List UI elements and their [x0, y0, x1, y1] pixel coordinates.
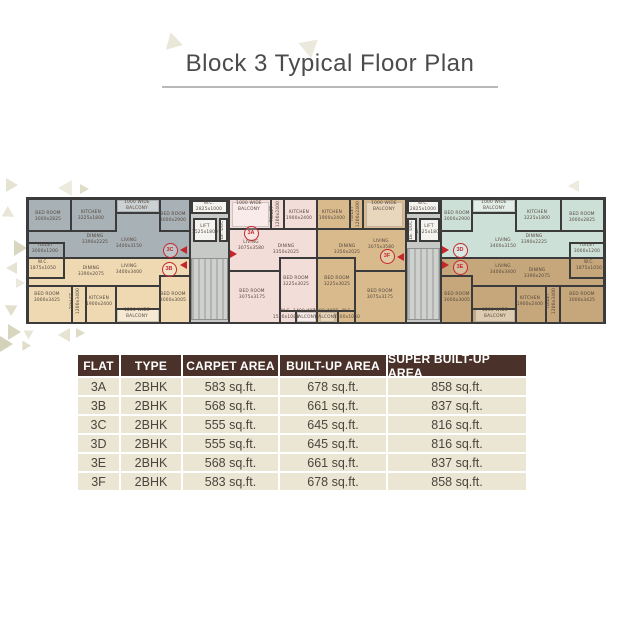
table-cell: 816 sq.ft. — [388, 416, 526, 433]
room-label: 1000 WIDEBALCONY — [124, 200, 150, 212]
wall — [569, 277, 603, 279]
wall — [559, 285, 561, 322]
room-label: LIFT1525x1800 — [416, 224, 442, 236]
room-label: BED ROOM3225x3025 — [324, 276, 350, 288]
wall — [29, 277, 63, 279]
table-cell: 555 sq.ft. — [183, 416, 278, 433]
room-label: DINING3390x2075 — [524, 268, 550, 280]
wall — [405, 200, 407, 322]
area-table: FLATTYPECARPET AREABUILT-UP AREASUPER BU… — [78, 355, 526, 490]
entry-arrow-icon — [442, 261, 449, 269]
decor-triangle — [2, 300, 18, 316]
flat-marker-3c: 3C — [163, 243, 178, 258]
decor-triangle — [58, 328, 70, 342]
decor-triangle — [0, 336, 13, 352]
room-label: W.C.2825x1000 — [196, 201, 222, 213]
room-label: BED ROOM3000x2900 — [444, 211, 470, 223]
room-label: KITCHEN1900x2400 — [319, 210, 345, 222]
wall — [569, 242, 571, 257]
wall — [354, 270, 405, 272]
column-header: FLAT — [78, 355, 119, 376]
entry-arrow-icon — [442, 246, 449, 254]
wall — [442, 275, 473, 277]
table-cell: 858 sq.ft. — [388, 473, 526, 490]
table-cell: 568 sq.ft. — [183, 454, 278, 471]
room-label: DINING3390x2225 — [82, 234, 108, 246]
room-label: KITCHEN3225x1800 — [78, 210, 104, 222]
decor-triangle — [16, 278, 25, 288]
staircase — [191, 258, 228, 320]
room-label: ELE. DUCT — [220, 218, 226, 242]
decor-triangle — [568, 180, 579, 192]
wall — [230, 270, 281, 272]
table-cell: 2BHK — [121, 416, 181, 433]
wall — [29, 285, 159, 287]
wall — [473, 212, 517, 214]
room-label: KITCHEN1900x2400 — [286, 210, 312, 222]
wall — [362, 200, 364, 228]
decor-triangle — [2, 206, 18, 222]
table-cell: 555 sq.ft. — [183, 435, 278, 452]
table-cell: 837 sq.ft. — [388, 454, 526, 471]
room-label: BED ROOM3000x3005 — [160, 292, 186, 304]
wall — [230, 228, 316, 230]
room-label: LIVING3400x3400 — [490, 264, 516, 276]
table-cell: 837 sq.ft. — [388, 397, 526, 414]
room-label: DINING3350x2025 — [273, 244, 299, 256]
room-label: TOILET1200x2400 — [270, 201, 282, 227]
room-label: BED ROOM3075x3175 — [239, 289, 265, 301]
wall — [189, 200, 191, 322]
column-header: BUILT-UP AREA — [280, 355, 386, 376]
room-label: LIVING3400x3400 — [116, 264, 142, 276]
room-label: BED ROOM3000x3425 — [569, 292, 595, 304]
wall — [560, 200, 562, 230]
flat-marker-3a: 3A — [244, 226, 259, 241]
room-label: KITCHEN3225x1800 — [524, 210, 550, 222]
table-cell: 2BHK — [121, 473, 181, 490]
wall — [471, 200, 473, 230]
wall — [283, 200, 285, 228]
table-cell: 858 sq.ft. — [388, 378, 526, 395]
room-label: W.C.1875x1050 — [576, 260, 602, 272]
flat-marker-3b: 3B — [162, 262, 177, 277]
decor-triangle — [6, 178, 18, 192]
room-label: W.C.1875x1050 — [30, 260, 56, 272]
table-cell: 2BHK — [121, 454, 181, 471]
table-cell: 3E — [78, 454, 119, 471]
table-cell: 3B — [78, 397, 119, 414]
entry-arrow-icon — [180, 261, 187, 269]
wall — [471, 275, 473, 322]
room-label: 1000 WIDEBALCONY — [236, 201, 262, 213]
room-label: LIFT1525x1800 — [192, 224, 218, 236]
entry-arrow-icon — [397, 253, 404, 261]
room-label: KITCHEN1900x2400 — [86, 296, 112, 308]
decor-triangle — [18, 341, 31, 354]
room-label: BED ROOM3000x3425 — [34, 292, 60, 304]
wall — [115, 212, 159, 214]
room-label: KITCHEN1900x2400 — [517, 296, 543, 308]
room-label: TOILET1200x3400 — [546, 288, 558, 314]
room-label: 1200 WIDEBALCONY — [482, 308, 508, 320]
table-cell: 583 sq.ft. — [183, 473, 278, 490]
table-cell: 678 sq.ft. — [280, 473, 386, 490]
wall — [115, 285, 117, 322]
table-cell: 3A — [78, 378, 119, 395]
room-label: 1000 WIDEBALCONY — [481, 200, 507, 212]
decor-triangle — [76, 328, 85, 338]
room-label: ELE. DUCT — [409, 218, 415, 242]
decor-triangle — [58, 180, 72, 196]
wall — [318, 228, 405, 230]
table-cell: 568 sq.ft. — [183, 397, 278, 414]
table-cell: 2BHK — [121, 378, 181, 395]
room-label: BED ROOM3075x3175 — [367, 289, 393, 301]
entry-arrow-icon — [180, 246, 187, 254]
room-label: 1000 WIDEBALCONY — [371, 201, 397, 213]
wall — [228, 200, 230, 322]
wall — [316, 200, 318, 322]
entry-arrow-icon — [230, 250, 237, 258]
room-label: 1200 WIDEBALCONY — [124, 308, 150, 320]
table-cell: 3F — [78, 473, 119, 490]
table-cell: 583 sq.ft. — [183, 378, 278, 395]
flat-marker-3e: 3E — [453, 260, 468, 275]
wall — [159, 230, 189, 232]
room-label: TOILET1200x3400 — [70, 288, 82, 314]
wall — [442, 230, 473, 232]
table-cell: 3C — [78, 416, 119, 433]
table-cell: 3D — [78, 435, 119, 452]
wall — [569, 257, 571, 279]
room-label: TOILET3000x1200 — [32, 243, 58, 255]
wall — [473, 285, 603, 287]
column-header: CARPET AREA — [183, 355, 278, 376]
room-label: TOILET3000x1200 — [574, 243, 600, 255]
decor-triangle — [6, 262, 17, 274]
room-label: DINING3390x2225 — [521, 234, 547, 246]
wall — [515, 200, 517, 230]
room-label: LIVING3075x3580 — [238, 240, 264, 252]
wall — [318, 257, 356, 259]
flat-marker-3f: 3F — [380, 249, 395, 264]
room-label: BED ROOM3000x2825 — [35, 211, 61, 223]
room-label: BED ROOM3000x3005 — [444, 292, 470, 304]
wall — [515, 230, 603, 232]
wall — [29, 230, 117, 232]
wall — [29, 257, 189, 259]
room-label: LIVING3400x3150 — [116, 238, 142, 250]
table-cell: 2BHK — [121, 435, 181, 452]
room-label: TOILET1200x2400 — [350, 201, 362, 227]
wall — [63, 257, 65, 279]
table-cell: 678 sq.ft. — [280, 378, 386, 395]
floor-plan: BED ROOM3000x2825KITCHEN3225x18001000 WI… — [26, 197, 606, 324]
page-title: Block 3 Typical Floor Plan — [162, 50, 498, 88]
wall — [279, 257, 316, 259]
decor-triangle — [80, 184, 89, 194]
room-label: BED ROOM3000x2825 — [569, 212, 595, 224]
wall — [115, 200, 117, 230]
table-cell: 2BHK — [121, 397, 181, 414]
staircase — [407, 248, 440, 320]
flat-marker-3d: 3D — [453, 243, 468, 258]
column-header: TYPE — [121, 355, 181, 376]
room-label: W.C.1500x1050 — [334, 309, 360, 321]
room-label: DINING3350x2025 — [334, 244, 360, 256]
table-cell: 645 sq.ft. — [280, 416, 386, 433]
room-label: DINING3390x2075 — [78, 266, 104, 278]
table-cell: 661 sq.ft. — [280, 454, 386, 471]
table-cell: 661 sq.ft. — [280, 397, 386, 414]
wall — [63, 242, 65, 257]
room-label: W.C.2825x1000 — [410, 201, 436, 213]
room-label: BED ROOM3225x3025 — [283, 276, 309, 288]
table-cell: 816 sq.ft. — [388, 435, 526, 452]
decor-triangle — [24, 331, 34, 340]
room-label: BED ROOM3000x2900 — [160, 212, 186, 224]
room-label: LIVING3400x3150 — [490, 238, 516, 250]
wall — [442, 257, 603, 259]
column-header: SUPER BUILT-UP AREA — [388, 355, 526, 376]
wall — [70, 200, 72, 230]
table-cell: 645 sq.ft. — [280, 435, 386, 452]
